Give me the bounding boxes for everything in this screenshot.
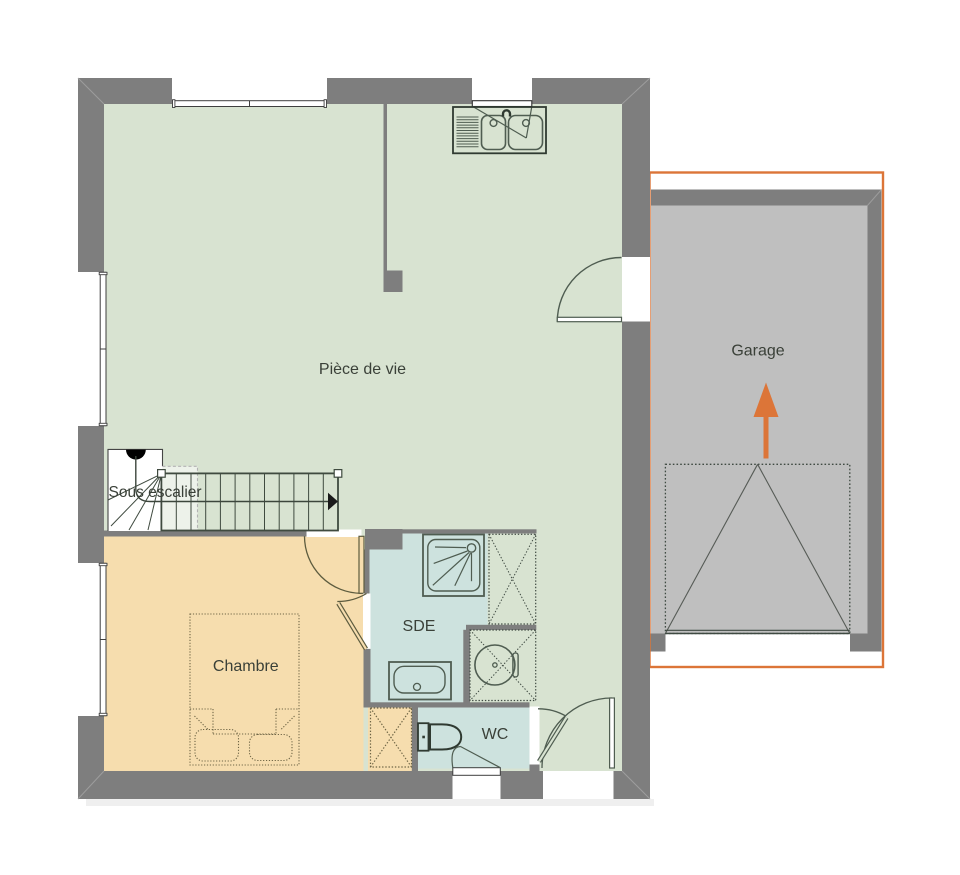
svg-text:Pièce de vie: Pièce de vie xyxy=(319,361,406,378)
svg-text:Garage: Garage xyxy=(731,343,784,360)
svg-text:Chambre: Chambre xyxy=(213,658,279,675)
svg-text:WC: WC xyxy=(482,726,509,743)
svg-text:SDE: SDE xyxy=(403,618,436,635)
svg-text:Sous escalier: Sous escalier xyxy=(109,484,202,501)
